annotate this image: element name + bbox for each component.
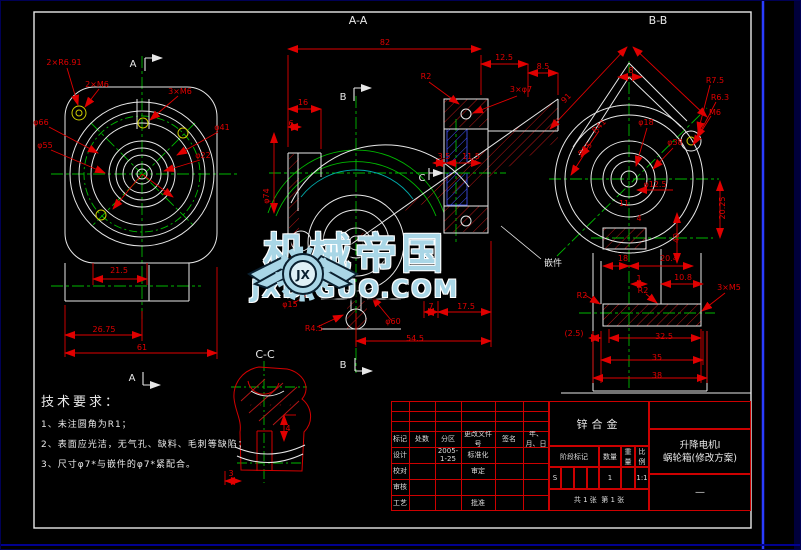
bb-centerlines — [549, 61, 719, 391]
dim-label: 3×M5 — [717, 283, 741, 292]
drawing-number-cell — [649, 401, 751, 429]
dim-label: 82 — [380, 38, 390, 47]
watermark-monogram: JX — [295, 268, 310, 282]
role-review: 审核 — [391, 479, 409, 495]
sheet-no: 第 1 张 — [601, 495, 624, 505]
section-marker-b-bottom: B — [340, 360, 347, 371]
role-approve: 批准 — [461, 495, 495, 511]
dim-label: 38 — [652, 371, 662, 380]
dim-label: φ38 — [667, 138, 682, 147]
dim-label: 2×R6.91 — [46, 58, 81, 67]
product-line2: 蜗轮箱(修改方案) — [663, 452, 737, 465]
dim-label: 3×φ7 — [510, 85, 532, 94]
dim-label: 21.5 — [110, 266, 128, 275]
dim-label: 7 — [428, 302, 433, 311]
sheets-total: 共 1 张 — [574, 495, 597, 505]
dim-label: 8 — [628, 66, 633, 75]
qty-value: 1 — [599, 467, 621, 489]
dim-label: R6.3 — [711, 93, 729, 102]
rev-header-sign: 签名 — [495, 431, 523, 447]
dim-label: φ55 — [37, 141, 52, 150]
dim-label: φ12.5 — [643, 180, 666, 189]
role-check: 校对 — [391, 463, 409, 479]
dim-label: 17.5 — [457, 302, 475, 311]
dim-label: 3.5 — [438, 152, 451, 161]
role-process: 工艺 — [391, 495, 409, 511]
design-date: 2005-1-25 — [435, 447, 461, 463]
product-name-cell: 升降电机Ⅰ 蜗轮箱(修改方案) — [649, 429, 751, 474]
dim-label: R41 — [590, 117, 608, 135]
product-line1: 升降电机Ⅰ — [680, 439, 721, 452]
role-approve-std: 审定 — [461, 463, 495, 479]
dim-label: 12.5 — [495, 53, 513, 62]
cad-drawing-canvas: 2×R6.912×M63×M6φ66φ55φ41φ2221.526.7561AA… — [0, 0, 801, 550]
tech-req-item-3: 3、尺寸φ7*与嵌件的φ7*紧配合。 — [41, 458, 259, 473]
view-title-aa: A-A — [349, 14, 368, 27]
dim-label: 20.25 — [718, 197, 727, 220]
extra-cell: — — [649, 474, 751, 511]
view-title-cc: C-C — [255, 348, 275, 361]
scale-value: 1:1 — [635, 467, 649, 489]
dim-label: 4 — [285, 424, 290, 433]
dim-label: φ60 — [385, 317, 400, 326]
tech-req-item-2: 2、表面应光洁，无气孔、缺料、毛刺等缺陷； — [41, 438, 259, 453]
technical-requirements: 技术要求： 1、未注圆角为R1； 2、表面应光洁，无气孔、缺料、毛刺等缺陷； 3… — [41, 391, 259, 478]
dim-label: 18 — [618, 254, 628, 263]
rev-header-date: 年、月、日 — [523, 431, 549, 447]
section-marker-b-top: B — [340, 92, 347, 103]
section-marker-a-top: A — [130, 59, 137, 70]
view-title-bb: B-B — [649, 14, 668, 27]
dim-label: R4.5 — [305, 324, 323, 333]
dim-label: 61 — [137, 343, 147, 352]
sheet-info: 共 1 张 第 1 张 — [549, 489, 649, 511]
dim-label: (2.5) — [565, 329, 584, 338]
dim-label: R2 — [421, 72, 432, 81]
stage-value: S — [549, 467, 561, 489]
front-view — [49, 56, 237, 385]
scale-label: 比例 — [635, 446, 649, 467]
dim-label: φ18 — [638, 118, 653, 127]
dim-label: 32.5 — [655, 332, 673, 341]
weight-label: 重量 — [621, 446, 635, 467]
section-marker-a-bottom: A — [129, 373, 136, 384]
dim-label: 35 — [652, 353, 662, 362]
insert-note: 嵌件 — [544, 257, 562, 269]
dim-label: R2 — [638, 286, 649, 295]
dim-label: 16 — [298, 98, 308, 107]
dim-label: 6 — [288, 119, 293, 128]
dim-label: φ66 — [33, 118, 48, 127]
insert-hatch-lower — [447, 173, 467, 205]
stage-label: 阶段标记 — [549, 446, 599, 467]
dim-label: R35 — [576, 140, 594, 158]
material-cell: 锌合金 — [549, 401, 649, 446]
dim-label: 4 — [636, 214, 641, 223]
weight-value — [621, 467, 635, 489]
dim-label: 54.5 — [406, 334, 424, 343]
title-block: 标记 处数 分区 更改文件号 签名 年、月、日 设计 2005-1-25 标准化… — [391, 401, 751, 511]
tech-req-item-1: 1、未注圆角为R1； — [41, 418, 259, 433]
role-design: 设计 — [391, 447, 409, 463]
dim-label: 26.75 — [93, 325, 116, 334]
dim-label: 10.8 — [674, 273, 692, 282]
qty-label: 数量 — [599, 446, 621, 467]
front-centerlines — [51, 56, 237, 319]
tech-req-title: 技术要求： — [41, 391, 259, 410]
dim-label: 20.4 — [660, 254, 678, 263]
dim-label: 1 — [636, 274, 641, 283]
dim-label: 8.5 — [537, 62, 550, 71]
rev-header-count: 处数 — [409, 431, 435, 447]
dim-label: φ22 — [195, 151, 210, 160]
dim-label: φ41 — [214, 123, 229, 132]
dim-label: R7.5 — [706, 76, 724, 85]
section-marker-c: C — [419, 173, 426, 184]
dim-label: 2×M6 — [85, 80, 109, 89]
role-standardization: 标准化 — [461, 447, 495, 463]
rev-header-zone: 分区 — [435, 431, 461, 447]
rev-header-mark: 标记 — [391, 431, 409, 447]
dim-label: M6 — [709, 108, 721, 117]
dim-label: φ74 — [262, 188, 271, 203]
dim-label: 40 — [672, 233, 681, 243]
dim-label: 91 — [559, 91, 573, 105]
dim-label: 3×M6 — [168, 87, 192, 96]
watermark-logo: JX — [247, 232, 359, 314]
rev-header-docno: 更改文件号 — [461, 431, 495, 447]
watermark: JX 机械帝国 JXDIGUO.COM — [247, 232, 459, 301]
dim-label: R2 — [577, 291, 588, 300]
dim-label: 11.5 — [462, 152, 480, 161]
dim-label: 11 — [619, 199, 629, 208]
